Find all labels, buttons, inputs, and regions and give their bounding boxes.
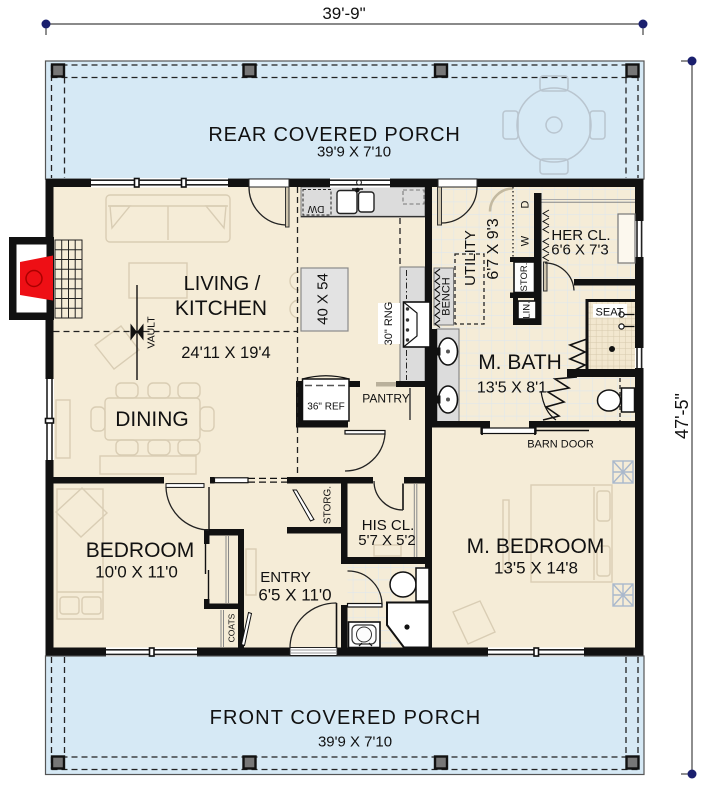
svg-text:STOR.: STOR. [519,263,530,292]
svg-text:39'9 X 7'10: 39'9 X 7'10 [318,734,392,751]
svg-text:LIVING /: LIVING / [184,273,261,295]
svg-text:STORG.: STORG. [323,486,334,524]
svg-text:5'7 X 5'2: 5'7 X 5'2 [358,532,415,549]
svg-text:VAULT: VAULT [146,316,158,349]
svg-text:DW: DW [307,203,324,214]
svg-text:COATS: COATS [227,613,237,642]
svg-text:30" RNG: 30" RNG [383,302,395,346]
svg-text:D: D [520,200,532,208]
svg-text:39'9 X 7'10: 39'9 X 7'10 [317,144,391,161]
svg-text:PANTRY: PANTRY [362,392,410,406]
svg-text:13'5 X 14'8: 13'5 X 14'8 [494,559,578,578]
svg-text:13'5 X 8'1: 13'5 X 8'1 [477,380,547,397]
svg-text:W: W [520,235,532,246]
svg-text:BENCH: BENCH [441,277,453,316]
svg-text:SEAT: SEAT [596,307,624,319]
svg-text:M. BEDROOM: M. BEDROOM [467,535,605,558]
svg-text:ENTRY: ENTRY [260,569,311,586]
svg-text:36" REF: 36" REF [307,402,344,413]
svg-text:6'6 X 7'3: 6'6 X 7'3 [551,242,608,259]
svg-text:24'11 X 19'4: 24'11 X 19'4 [181,344,271,362]
svg-text:BARN DOOR: BARN DOOR [527,439,594,451]
svg-text:LIN.: LIN. [522,301,533,318]
svg-text:39'-9": 39'-9" [322,4,365,23]
svg-text:6'7 X 9'3: 6'7 X 9'3 [485,218,502,279]
svg-text:10'0 X 11'0: 10'0 X 11'0 [95,563,178,582]
svg-text:UTILITY: UTILITY [462,230,479,286]
svg-text:M. BATH: M. BATH [478,351,562,374]
svg-text:47'-5": 47'-5" [672,393,692,439]
svg-text:DINING: DINING [115,408,189,431]
svg-text:BEDROOM: BEDROOM [86,539,195,562]
svg-text:6'5 X 11'0: 6'5 X 11'0 [258,586,331,605]
svg-text:FRONT COVERED PORCH: FRONT COVERED PORCH [210,707,482,729]
svg-text:KITCHEN: KITCHEN [175,297,267,320]
svg-text:40 X 54: 40 X 54 [315,273,332,325]
